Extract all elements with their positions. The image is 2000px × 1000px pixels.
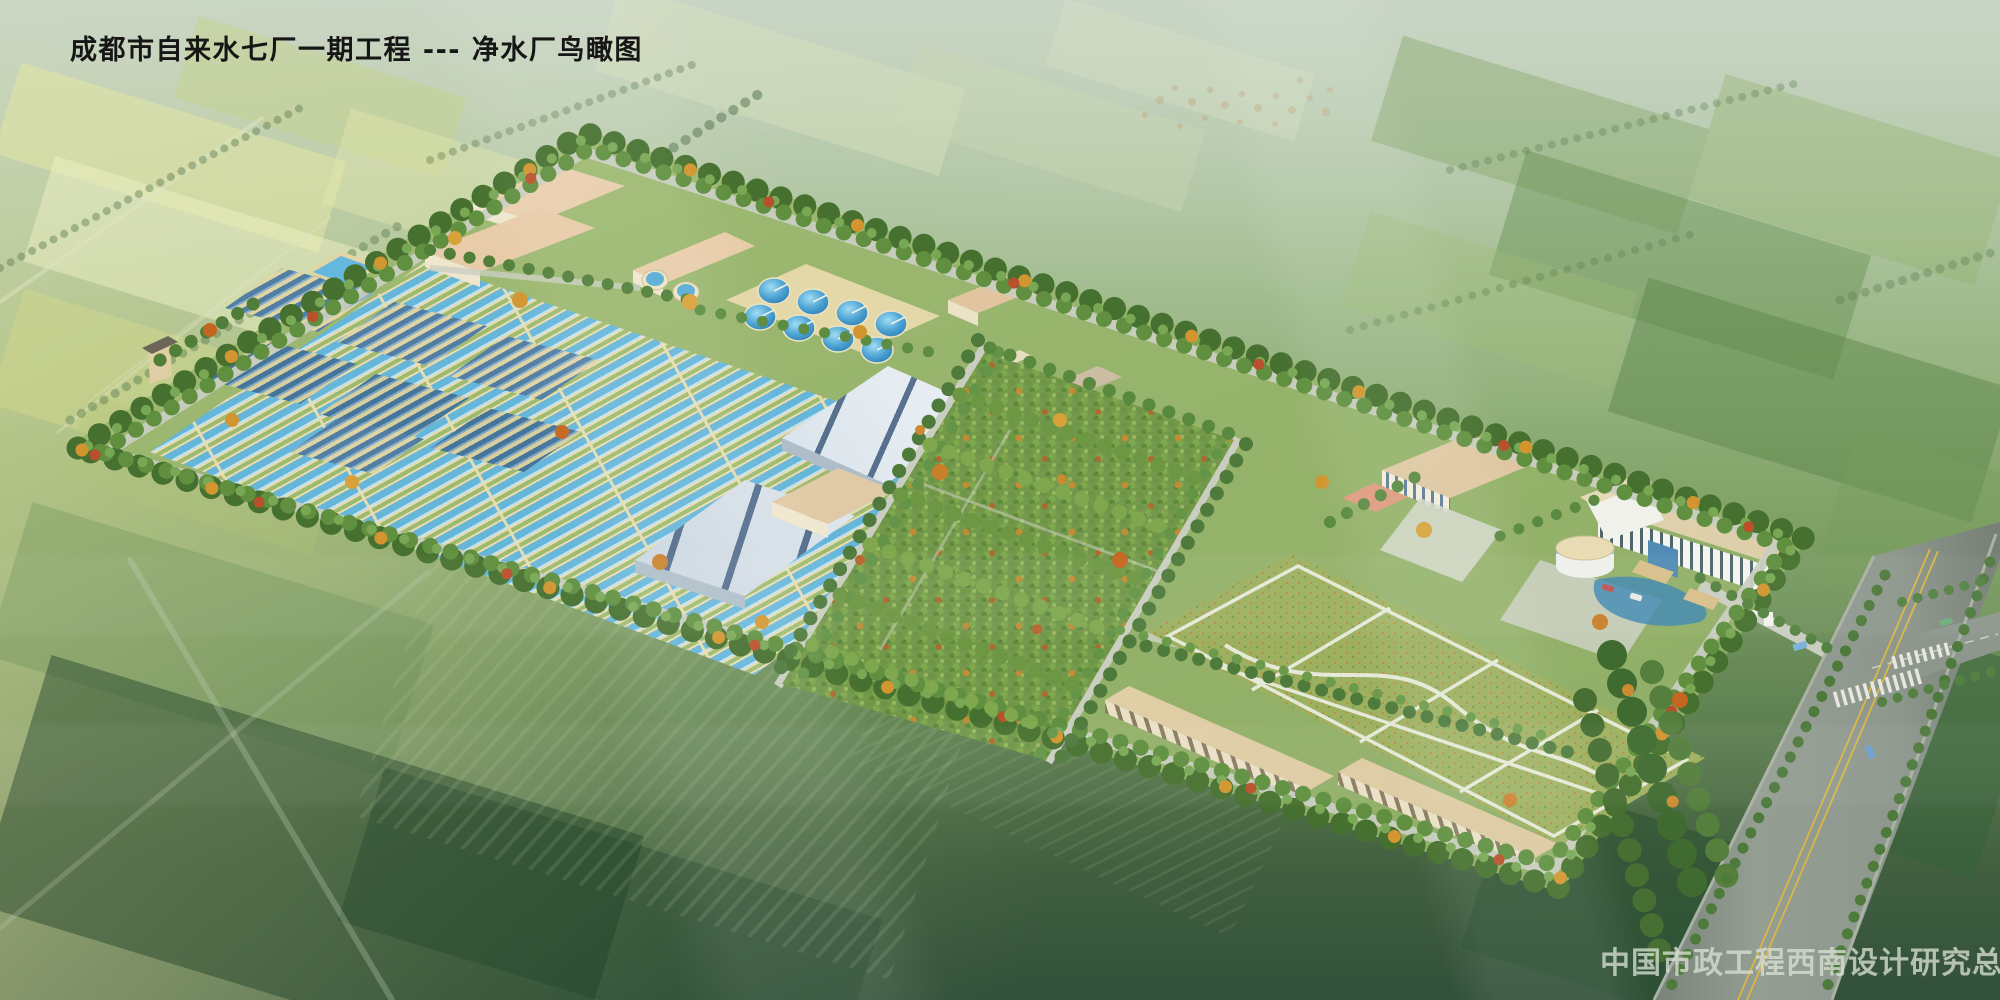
aerial-rendering-canvas: 成都市自来水七厂一期工程 --- 净水厂鸟瞰图 中国市政工程西南设计研究总院 <box>0 0 2000 1000</box>
site-details <box>0 0 2000 1000</box>
clarifier-platform <box>642 264 940 363</box>
design-institute-watermark: 中国市政工程西南设计研究总院 <box>1600 938 2000 982</box>
page-title: 成都市自来水七厂一期工程 --- 净水厂鸟瞰图 <box>70 28 643 67</box>
